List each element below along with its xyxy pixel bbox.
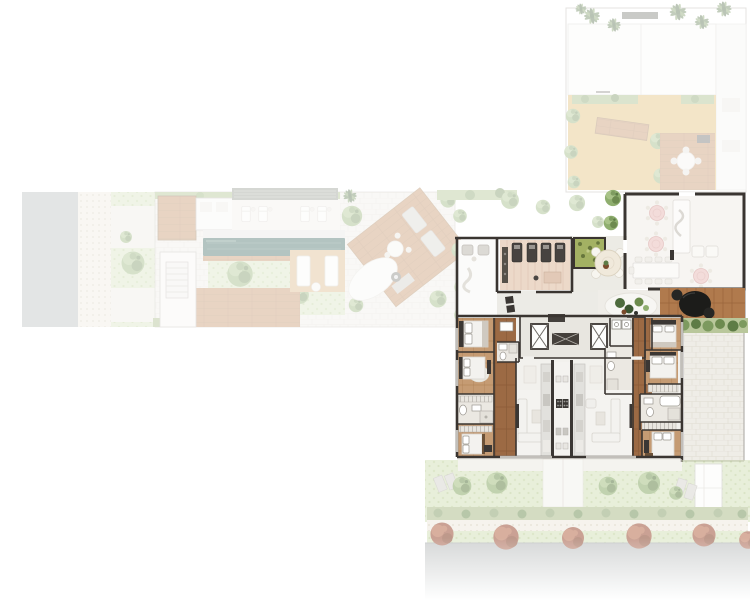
toilet <box>608 362 615 371</box>
lower-wood-deck <box>196 288 300 327</box>
closet-rail <box>459 426 492 432</box>
black-chair <box>672 290 683 301</box>
palm-tree <box>716 1 731 17</box>
stove <box>563 399 569 408</box>
bed-headboard <box>651 320 676 325</box>
closet-rail <box>642 422 676 430</box>
floor-plan-stage <box>0 0 750 600</box>
window <box>681 352 684 378</box>
pavilion-fixture <box>200 202 212 212</box>
entry-cabinet <box>500 322 513 331</box>
shower <box>668 408 680 420</box>
counter-appliance <box>576 372 583 382</box>
counter-appliance <box>543 372 550 382</box>
private-terrace-east <box>684 333 744 461</box>
exercise-mat <box>544 272 561 283</box>
potted-plant <box>615 298 625 308</box>
bench <box>505 296 514 304</box>
sink <box>607 352 616 358</box>
dining-entry-tree <box>605 190 621 206</box>
toilet <box>460 405 467 415</box>
patio-bush <box>568 176 581 189</box>
terrace-structure <box>568 24 716 95</box>
potted-plant <box>643 305 649 311</box>
hedge-blob <box>611 94 619 102</box>
hedge-blob <box>691 319 701 329</box>
sink <box>644 398 653 404</box>
cabana-lounger <box>297 256 310 286</box>
deck-round-table <box>677 152 695 170</box>
dinette-table <box>590 366 602 383</box>
entry-pavilion-deck <box>158 196 196 240</box>
toilet <box>500 352 506 360</box>
plaza-tree <box>342 206 362 226</box>
bed-pillow <box>653 326 662 332</box>
bedroom-bench <box>644 440 649 453</box>
bed-pillow <box>465 323 472 333</box>
party-wall <box>551 360 554 458</box>
bed-pillow <box>654 433 662 440</box>
cabana-table <box>312 283 321 292</box>
dumbbell <box>504 263 506 265</box>
plant-pot <box>622 310 627 315</box>
tv-unit <box>517 404 520 428</box>
burner <box>560 401 562 403</box>
gym-door-gap <box>521 290 536 293</box>
burner <box>566 405 568 407</box>
bed-headboard <box>650 352 676 356</box>
moss-dot <box>586 249 589 252</box>
shaft-sink <box>556 428 561 435</box>
plaza-tree <box>430 291 447 308</box>
bed-pillow <box>464 359 470 367</box>
toilet <box>647 408 654 417</box>
tv-unit <box>630 404 633 428</box>
hedge-blob <box>658 509 667 518</box>
garden-tree <box>486 472 507 493</box>
dining-chair <box>645 279 652 284</box>
context-roof-terrace <box>564 1 746 192</box>
dining-chair <box>629 267 634 274</box>
treadmill-console <box>514 245 520 249</box>
closet-rail <box>459 396 492 402</box>
dining-side-door-gap <box>623 240 627 253</box>
side-fixture <box>722 140 740 152</box>
treadmill-console <box>543 245 549 249</box>
treadmill-console <box>557 245 563 249</box>
garden-tree <box>638 472 660 494</box>
verge-tree <box>122 252 145 275</box>
pavilion-fixture <box>216 202 228 212</box>
pergola-bar <box>622 12 658 19</box>
hedge-blob <box>434 509 443 518</box>
patio-bush <box>566 109 580 123</box>
unit-west-corridor <box>494 318 516 458</box>
bed-throw <box>651 342 676 347</box>
unit-entry-gap <box>631 356 642 359</box>
hedge-blob <box>462 510 471 519</box>
appliance <box>563 376 568 382</box>
dining-stool <box>706 246 718 257</box>
burner <box>564 401 566 403</box>
hedge-blob <box>581 95 589 103</box>
dining-chair <box>655 257 662 262</box>
unit-entry-gap <box>523 356 534 359</box>
deck-chair <box>683 147 690 154</box>
hedge-blob <box>490 509 499 518</box>
patio-bush <box>564 145 578 159</box>
side-fixture <box>722 98 740 112</box>
shower-drain <box>485 416 488 419</box>
sofa <box>611 399 620 435</box>
hedge-blob <box>728 321 739 332</box>
treadmill-console <box>529 245 535 249</box>
bed-pillow <box>465 334 472 344</box>
bed-pillow <box>652 357 662 364</box>
dinette-table <box>524 366 536 383</box>
potted-plant <box>635 298 644 307</box>
window <box>456 430 459 452</box>
window-sliding <box>586 456 636 459</box>
counter-cabinet <box>543 440 550 452</box>
burner <box>560 405 562 407</box>
focus-floorplate <box>455 190 748 462</box>
pool-glint <box>206 240 236 242</box>
hedge-blob <box>738 510 747 519</box>
plaza-bush <box>592 216 604 228</box>
bed-pillow <box>665 326 674 332</box>
counter-appliance <box>576 420 583 432</box>
dining-entry-tree <box>604 216 618 230</box>
bedroom-bench <box>484 445 492 452</box>
dryer <box>622 320 631 329</box>
counter-sink <box>576 394 583 406</box>
hedge-blob <box>739 320 747 328</box>
appliance <box>556 376 561 382</box>
hedge-blob <box>574 510 583 519</box>
bedroom-bench <box>487 360 491 374</box>
palm-tree <box>584 8 600 24</box>
plaza-tree <box>501 191 519 209</box>
sofa <box>518 399 527 435</box>
border-tree <box>453 209 467 223</box>
cabana-lounger <box>325 256 338 286</box>
lounge-armchair <box>478 245 489 255</box>
window <box>681 322 684 346</box>
hedge-row <box>427 507 748 520</box>
hedge-blob <box>630 510 639 519</box>
lounge-side-table <box>472 257 477 262</box>
party-wall <box>570 360 573 458</box>
coffee-table <box>532 410 541 423</box>
dining-chair <box>655 279 662 284</box>
moss-dot <box>596 241 600 245</box>
stove <box>556 399 562 408</box>
door-leaf <box>670 250 674 260</box>
hedge-blob <box>703 321 714 332</box>
lawn-tree <box>227 261 253 287</box>
bed-pillow <box>664 357 674 364</box>
sink <box>499 344 507 350</box>
burner <box>566 401 568 403</box>
bottom-fade-overlay <box>0 538 750 600</box>
hedge-blob <box>546 509 555 518</box>
coffee-table <box>596 412 605 425</box>
bed-throw <box>482 321 488 347</box>
sink <box>472 405 481 411</box>
grill <box>697 135 710 143</box>
counter-cabinet <box>576 440 583 452</box>
street-west <box>22 192 78 327</box>
hedge-blob <box>715 319 725 329</box>
appliance <box>563 443 568 449</box>
bathtub <box>660 396 680 406</box>
bed-headboard <box>459 357 463 379</box>
appliance <box>556 443 561 449</box>
dumbbell <box>504 273 506 275</box>
sofa-chaise <box>592 433 620 442</box>
garden-tree <box>599 477 618 496</box>
deck-chair <box>683 169 690 176</box>
garden-tree <box>453 477 472 496</box>
shower <box>509 344 517 353</box>
washer <box>612 320 621 329</box>
plant-pot <box>634 311 638 315</box>
bedroom-bench <box>646 360 650 372</box>
counter-appliance <box>543 420 550 432</box>
bed-pillow <box>463 445 469 453</box>
hedge-blob <box>518 510 527 519</box>
verge-stone <box>111 206 155 248</box>
window <box>681 432 684 456</box>
dining-chair <box>635 279 642 284</box>
burner <box>557 401 559 403</box>
bench <box>506 305 515 313</box>
moss-dot <box>578 242 582 246</box>
plaza-tree <box>536 200 550 214</box>
floor-plan-canvas <box>0 0 750 600</box>
deck-chair <box>695 158 702 165</box>
dining-chair <box>635 257 642 262</box>
counter-sink <box>543 394 550 406</box>
shaft-sink <box>563 428 568 435</box>
dining-chair <box>645 257 652 262</box>
black-chair <box>704 308 715 319</box>
shower <box>607 379 618 391</box>
hedge-blob <box>714 509 723 518</box>
palm-tree <box>670 3 687 20</box>
bed-pillow <box>663 433 671 440</box>
armchair <box>586 399 596 408</box>
dining-door-gap <box>679 192 695 196</box>
verge-stone <box>111 288 155 322</box>
hedge-blob <box>465 190 475 200</box>
hedge-blob <box>691 95 699 103</box>
dining-stool <box>692 246 704 257</box>
garden-bush <box>669 486 683 500</box>
dining-chair <box>665 279 672 284</box>
sidewalk-west <box>78 192 111 327</box>
moss-dot <box>581 254 585 258</box>
hedge-blob <box>686 510 695 519</box>
bed-pillow <box>464 368 470 376</box>
weight-ball <box>534 276 539 281</box>
burner <box>564 405 566 407</box>
lounge-armchair <box>462 245 473 255</box>
dining-long-table <box>633 263 679 278</box>
window-sliding <box>500 456 552 459</box>
table-plant <box>604 261 609 266</box>
pool-deck-edge <box>203 230 345 238</box>
verge-bush <box>120 231 132 243</box>
deck-chair <box>671 158 678 165</box>
palm-tree <box>575 3 586 15</box>
window <box>456 328 459 350</box>
burner <box>557 405 559 407</box>
bed-headboard <box>459 321 464 347</box>
bed-pillow <box>463 436 469 444</box>
hedge-blob <box>602 509 611 518</box>
dumbbell <box>504 253 506 255</box>
closet-rail <box>648 384 678 392</box>
plaza-tree <box>569 195 585 211</box>
pond-sculpture-top <box>394 275 398 279</box>
window <box>456 360 459 386</box>
